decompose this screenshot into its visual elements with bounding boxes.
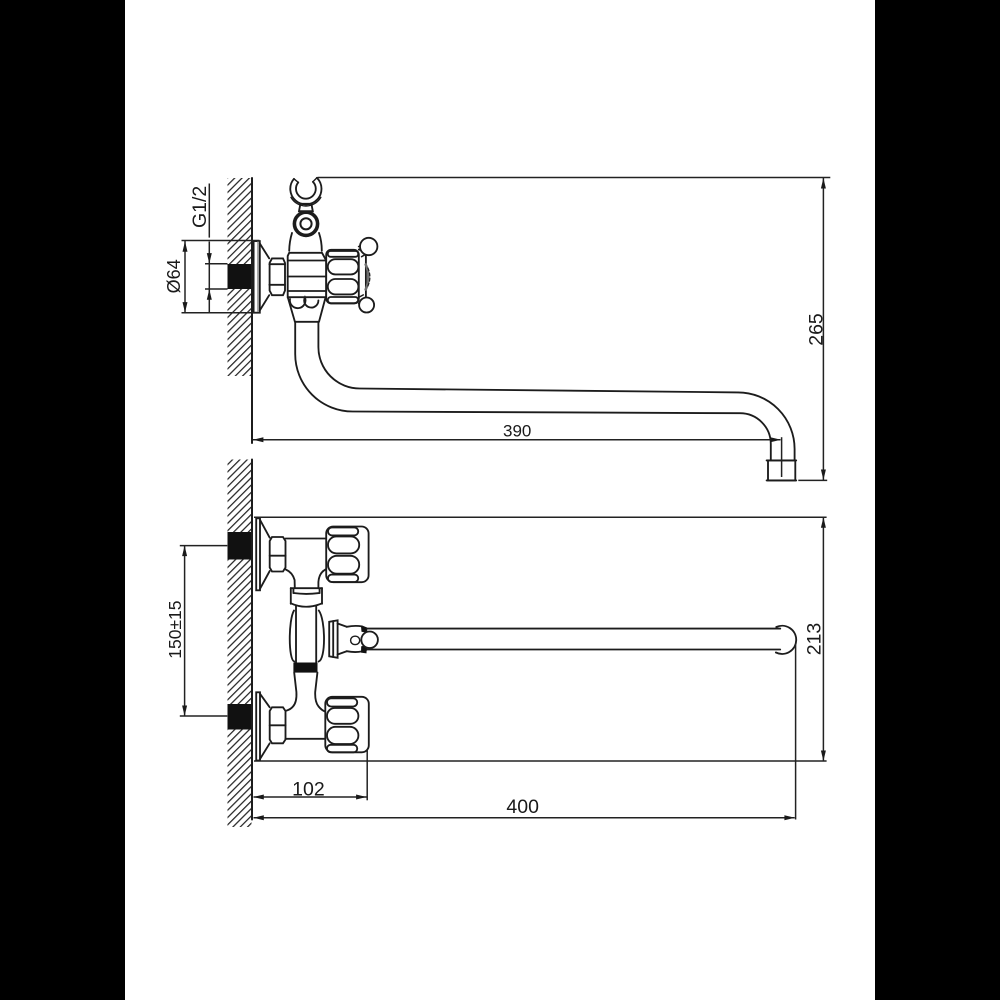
svg-text:213: 213: [803, 623, 825, 656]
svg-text:Ø64: Ø64: [164, 259, 184, 293]
svg-text:390: 390: [503, 422, 531, 441]
svg-text:102: 102: [292, 778, 325, 800]
svg-text:400: 400: [506, 796, 539, 818]
svg-text:150±15: 150±15: [165, 600, 185, 658]
svg-text:265: 265: [806, 313, 828, 346]
svg-text:G1/2: G1/2: [189, 186, 211, 228]
